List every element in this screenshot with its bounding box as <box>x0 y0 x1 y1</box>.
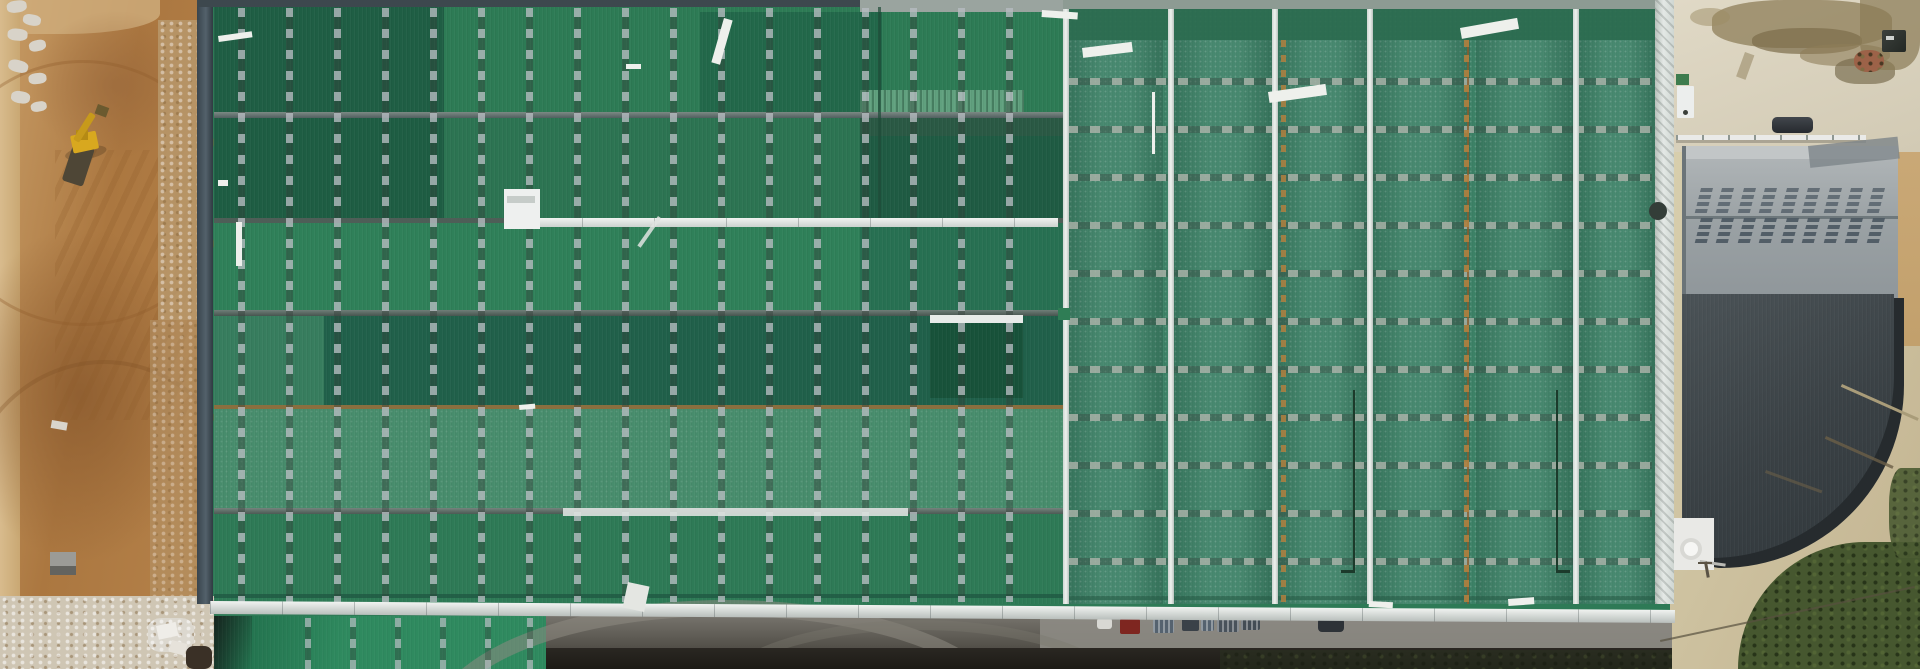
rubble-strip-lower <box>150 320 202 610</box>
conduit-foot-2 <box>1556 570 1570 573</box>
roof-dash-row <box>1068 414 1652 421</box>
roof-dash-row <box>1068 558 1652 565</box>
roof-dash-row <box>1068 222 1652 229</box>
debris-plank-2 <box>236 222 242 266</box>
roof-dash-column <box>526 8 533 602</box>
dark-pit <box>186 646 212 669</box>
aerial-photo-stage <box>0 0 1920 669</box>
roof-c-seam-1 <box>1063 9 1069 604</box>
roof-c-seam-2 <box>1168 9 1174 604</box>
roof-c-seam-4 <box>1367 9 1373 604</box>
roof-dash-row <box>1068 270 1652 277</box>
roof-left-fascia <box>197 0 213 604</box>
guard-booth-dot <box>1683 110 1688 115</box>
roof-dash-row <box>1068 126 1652 133</box>
parked-suv <box>1772 117 1813 133</box>
roof-dash-row <box>1068 318 1652 325</box>
roof-dash-row <box>1068 366 1652 373</box>
roof-dash-column <box>1006 8 1013 602</box>
wing-dash-column <box>395 618 401 669</box>
roof-dash-row <box>1068 78 1652 85</box>
debris-thin-strip <box>1152 92 1155 154</box>
rooftop-equipment-box <box>504 189 540 229</box>
green-utility-box <box>1676 74 1689 85</box>
rubble-strip-upper <box>158 20 202 320</box>
parapet-dark-disc <box>1649 202 1667 220</box>
roof-dash-column <box>334 8 341 602</box>
roof-dash-column <box>478 8 485 602</box>
roof-c-seam-5 <box>1573 9 1579 604</box>
storage-tank-inner <box>1684 542 1698 556</box>
annex-roof-left-edge <box>1682 146 1686 302</box>
wing-dash-column <box>485 618 491 669</box>
bottom-vegetation-tint <box>1220 650 1672 669</box>
roof-c-parapet-hatch <box>1655 0 1674 604</box>
wing-dash-column <box>350 618 356 669</box>
roof-c-eave-shadow <box>1063 596 1655 600</box>
roof-dash-column <box>238 8 245 602</box>
utility-pole-crossarm <box>1698 562 1712 564</box>
roof-a-speckle <box>214 409 1063 508</box>
roof-dash-column <box>382 8 389 602</box>
parked-white-car <box>1097 618 1112 629</box>
debris-bit-1 <box>218 180 228 186</box>
roof-dash-column <box>430 8 437 602</box>
material-pile <box>1854 50 1884 72</box>
green-patch-on-seam <box>1058 308 1070 320</box>
wing-dash-column <box>305 618 311 669</box>
rust-dash-column-1 <box>1464 40 1469 604</box>
roof-dash-column <box>958 8 965 602</box>
roof-ridge-1 <box>214 112 1063 118</box>
parked-red-truck <box>1120 619 1140 634</box>
roof-dash-row <box>1068 510 1652 517</box>
roof-dash-column <box>910 8 917 602</box>
rock <box>7 28 28 41</box>
rooftop-equipment-lid <box>507 196 535 203</box>
mud-stain-4 <box>1690 8 1730 26</box>
conduit-foot-1 <box>1341 570 1355 573</box>
roof-c-top-gray <box>1063 0 1672 9</box>
roof-top-edge-left <box>197 0 933 7</box>
conduit-line-2 <box>1556 390 1558 572</box>
wing-dash-column <box>527 618 533 669</box>
roof-eave-tan-line <box>214 405 1063 409</box>
walkway-short <box>930 315 1023 323</box>
debris-bit-5 <box>1369 601 1393 608</box>
walkway-upper-joints <box>510 218 1058 227</box>
roof-plane-edge <box>878 7 881 218</box>
small-shed-shadow-side <box>50 566 76 575</box>
conduit-line-1 <box>1353 390 1355 572</box>
roof-dash-row <box>1068 462 1652 469</box>
parked-flatbed-truck <box>1882 30 1906 52</box>
rust-dash-column-2 <box>1281 40 1286 604</box>
debris-bit-4 <box>1508 597 1534 606</box>
walkway-mid <box>563 508 908 516</box>
roof-dash-row <box>1068 174 1652 181</box>
debris-bit-2 <box>626 64 641 69</box>
roof-dash-column <box>286 8 293 602</box>
truck-cargo-fleck <box>1886 36 1894 40</box>
wing-dash-column <box>440 618 446 669</box>
vegetation-right-upper <box>1889 468 1920 558</box>
